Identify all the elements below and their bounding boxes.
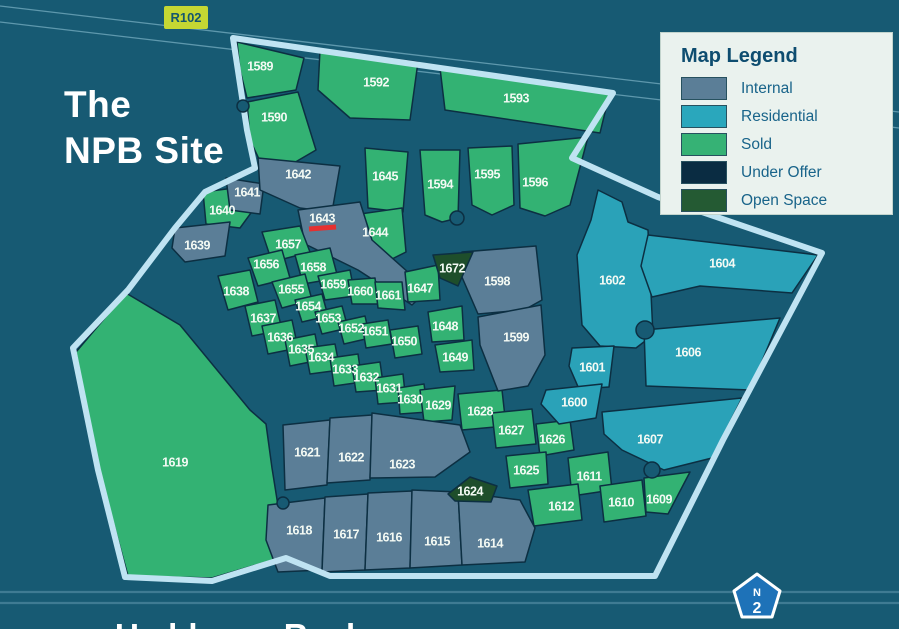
plot-label-1610: 1610	[608, 496, 634, 510]
plot-label-1661: 1661	[375, 289, 401, 303]
legend-item-label: Internal	[741, 80, 793, 98]
internal-color-swatch	[681, 77, 727, 100]
plot-label-1658: 1658	[300, 261, 326, 275]
page-title: The NPB Site	[64, 82, 224, 174]
plot-label-1601: 1601	[579, 361, 605, 375]
plot-label-1645: 1645	[372, 170, 398, 184]
open-space-color-swatch	[681, 189, 727, 212]
plot-label-1612: 1612	[548, 500, 574, 514]
plot-label-1590: 1590	[261, 111, 287, 125]
plot-label-1624: 1624	[457, 485, 483, 499]
map-legend: Map Legend Internal Residential Sold Und…	[660, 32, 893, 215]
red-highlight-marker	[309, 227, 336, 229]
n2-shield-letter: N	[753, 587, 761, 599]
residential-color-swatch	[681, 105, 727, 128]
legend-item-label: Residential	[741, 108, 818, 126]
cul-de-sac-4	[277, 497, 289, 509]
plot-label-1615: 1615	[424, 535, 450, 549]
plot-label-1611: 1611	[576, 470, 602, 484]
plot-label-1623: 1623	[389, 458, 415, 472]
plot-label-1659: 1659	[320, 278, 346, 292]
legend-title: Map Legend	[681, 45, 892, 68]
legend-item-sold: Sold	[681, 133, 892, 156]
plot-label-1622: 1622	[338, 451, 364, 465]
n2-shield-number: 2	[753, 600, 762, 617]
plot-label-1655: 1655	[278, 283, 304, 297]
plot-label-1614: 1614	[477, 537, 503, 551]
plot-1622	[327, 415, 372, 483]
plot-1615	[410, 490, 462, 568]
sold-color-swatch	[681, 133, 727, 156]
legend-item-label: Open Space	[741, 192, 827, 210]
plot-label-1656: 1656	[253, 258, 279, 272]
plot-label-1627: 1627	[498, 424, 524, 438]
plot-label-1650: 1650	[391, 335, 417, 349]
page-title-line2: NPB Site	[64, 128, 224, 174]
site-map-page: 1589159015921593159415951596164516441640…	[0, 0, 899, 629]
legend-item-under-offer: Under Offer	[681, 161, 892, 184]
plot-label-1626: 1626	[539, 433, 565, 447]
plot-label-1649: 1649	[442, 351, 468, 365]
plot-label-1672: 1672	[439, 262, 465, 276]
plot-label-1592: 1592	[363, 76, 389, 90]
cul-de-sac-0	[237, 100, 249, 112]
legend-item-open-space: Open Space	[681, 189, 892, 212]
plot-label-1606: 1606	[675, 346, 701, 360]
plot-label-1625: 1625	[513, 464, 539, 478]
plot-label-1638: 1638	[223, 285, 249, 299]
plot-label-1604: 1604	[709, 257, 735, 271]
bottom-clipped-label: Umhlanga Rocks	[115, 617, 383, 629]
plot-label-1616: 1616	[376, 531, 402, 545]
plot-label-1640: 1640	[209, 204, 235, 218]
under-offer-color-swatch	[681, 161, 727, 184]
plot-label-1652: 1652	[338, 322, 364, 336]
plot-label-1642: 1642	[285, 168, 311, 182]
plot-label-1644: 1644	[362, 226, 388, 240]
plot-label-1600: 1600	[561, 396, 587, 410]
plot-label-1648: 1648	[432, 320, 458, 334]
plot-label-1637: 1637	[250, 312, 276, 326]
plot-label-1593: 1593	[503, 92, 529, 106]
plot-label-1639: 1639	[184, 239, 210, 253]
plot-label-1651: 1651	[362, 325, 388, 339]
plot-label-1634: 1634	[308, 351, 334, 365]
legend-item-residential: Residential	[681, 105, 892, 128]
plot-label-1660: 1660	[347, 285, 373, 299]
plot-label-1630: 1630	[397, 393, 423, 407]
r102-badge-label: R102	[170, 10, 201, 25]
cul-de-sac-1	[450, 211, 464, 225]
plot-label-1617: 1617	[333, 528, 359, 542]
plot-label-1643: 1643	[309, 212, 335, 226]
plot-label-1598: 1598	[484, 275, 510, 289]
plot-label-1594: 1594	[427, 178, 453, 192]
plot-label-1589: 1589	[247, 60, 273, 74]
plot-label-1609: 1609	[646, 493, 672, 507]
page-title-line1: The	[64, 82, 224, 128]
plot-label-1629: 1629	[425, 399, 451, 413]
plot-label-1618: 1618	[286, 524, 312, 538]
legend-item-internal: Internal	[681, 77, 892, 100]
plot-label-1596: 1596	[522, 176, 548, 190]
plot-label-1607: 1607	[637, 433, 663, 447]
plot-label-1621: 1621	[294, 446, 320, 460]
plot-label-1599: 1599	[503, 331, 529, 345]
plot-label-1619: 1619	[162, 456, 188, 470]
plot-label-1602: 1602	[599, 274, 625, 288]
legend-item-label: Sold	[741, 136, 772, 154]
legend-item-label: Under Offer	[741, 164, 822, 182]
cul-de-sac-2	[636, 321, 654, 339]
plot-label-1647: 1647	[407, 282, 433, 296]
plot-label-1628: 1628	[467, 405, 493, 419]
cul-de-sac-3	[644, 462, 660, 478]
plot-label-1595: 1595	[474, 168, 500, 182]
plot-label-1641: 1641	[234, 186, 260, 200]
plot-label-1657: 1657	[275, 238, 301, 252]
